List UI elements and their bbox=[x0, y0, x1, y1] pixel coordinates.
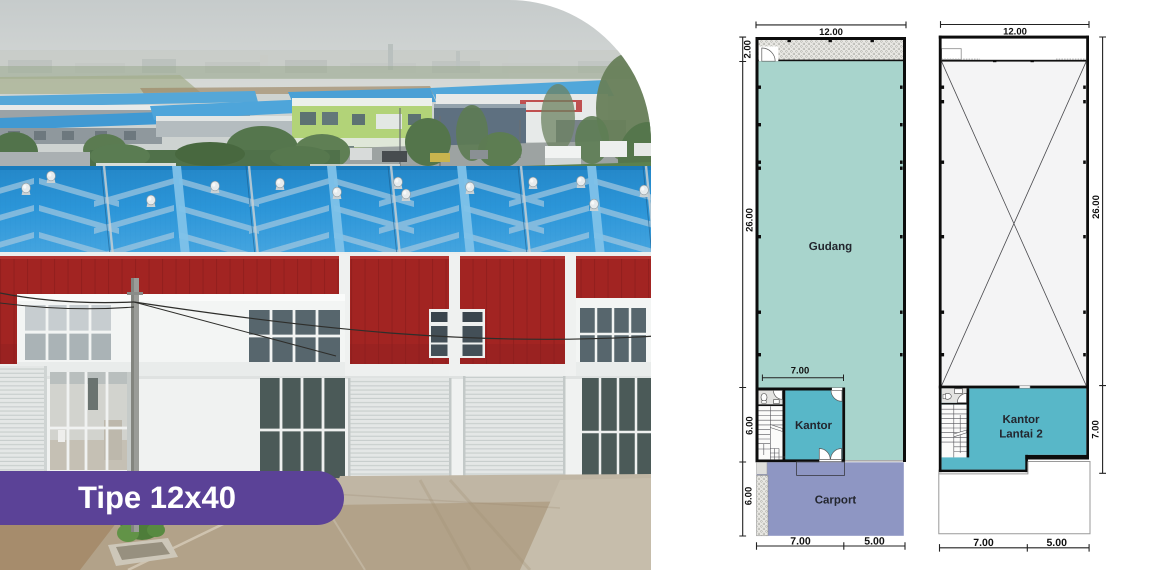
svg-text:7.00: 7.00 bbox=[790, 535, 811, 547]
svg-text:6.00: 6.00 bbox=[744, 487, 755, 506]
svg-text:Carport: Carport bbox=[815, 495, 857, 507]
svg-text:7.00: 7.00 bbox=[1091, 420, 1102, 439]
svg-text:5.00: 5.00 bbox=[864, 535, 885, 547]
svg-text:Gudang: Gudang bbox=[809, 241, 852, 253]
svg-text:12.00: 12.00 bbox=[1003, 26, 1027, 37]
svg-text:26.00: 26.00 bbox=[1091, 195, 1102, 219]
svg-text:7.00: 7.00 bbox=[791, 366, 810, 377]
svg-text:Lantai 2: Lantai 2 bbox=[999, 429, 1042, 441]
svg-text:5.00: 5.00 bbox=[1046, 537, 1067, 549]
svg-text:2.00: 2.00 bbox=[743, 40, 754, 59]
svg-text:Tipe 12x40: Tipe 12x40 bbox=[78, 480, 236, 515]
svg-text:6.00: 6.00 bbox=[745, 416, 756, 435]
svg-text:Kantor: Kantor bbox=[795, 420, 833, 432]
svg-text:26.00: 26.00 bbox=[745, 208, 756, 232]
svg-text:12.00: 12.00 bbox=[819, 27, 843, 38]
svg-text:7.00: 7.00 bbox=[973, 537, 994, 549]
svg-text:Kantor: Kantor bbox=[1002, 414, 1040, 426]
